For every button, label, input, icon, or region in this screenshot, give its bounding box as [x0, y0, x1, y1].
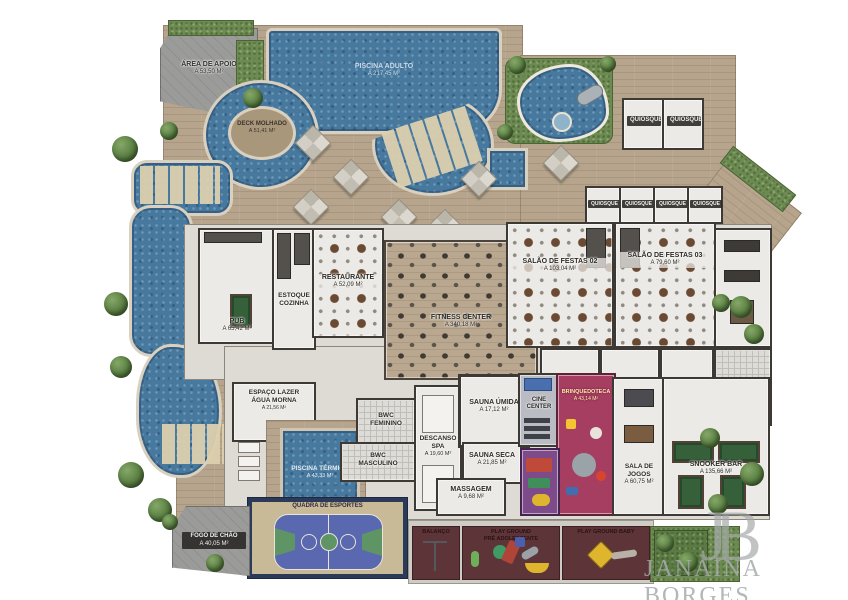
court-ft-circle-right — [340, 534, 356, 550]
estoque-label-2: COZINHA — [274, 300, 314, 308]
brand-name: JANAINA BORGES — [644, 556, 848, 600]
quiosque-label: QUIOSQUE — [622, 200, 654, 208]
baby-slide — [611, 549, 638, 560]
snooker-table — [718, 441, 760, 463]
quiosque-label: QUIOSQUE — [656, 200, 688, 208]
salao2-area: A 103,04 M² — [508, 266, 612, 273]
sala-jogos-label: SALA DE JOGOS — [614, 463, 664, 479]
bwc-masc-label-1: BWC — [342, 452, 414, 460]
kiosk-room: QUIOSQUE — [662, 98, 704, 150]
kiosk-room: QUIOSQUE — [619, 186, 655, 224]
soft-play-block — [528, 478, 550, 488]
play-slide — [520, 545, 540, 561]
tree-icon — [160, 122, 178, 140]
sauna-seca-area: A 21,85 M² — [464, 460, 520, 467]
estoque-label-1: ESTOQUE — [274, 292, 314, 300]
tree-icon — [104, 292, 128, 316]
play-tube-yellow — [525, 563, 549, 573]
massagem-area: A 9,68 M² — [438, 494, 504, 501]
espaco-lazer-label-1: ESPAÇO LAZER — [234, 389, 314, 397]
kiosk-room: QUIOSQUE — [585, 186, 621, 224]
leisure-floor-plan: ÁREA DE APOIO A 53,50 M² PISCINA ADULTO … — [0, 0, 848, 600]
tree-icon — [497, 124, 513, 140]
quiosque-label: QUIOSQUE — [690, 200, 722, 208]
quadra-label: QUADRA DE ESPORTES — [252, 503, 403, 510]
toy-ball — [590, 427, 602, 439]
tree-icon — [110, 356, 132, 378]
room-estoque-cozinha: ESTOQUE COZINHA — [272, 228, 316, 350]
tree-icon — [730, 296, 752, 318]
quiosque-label: QUIOSQUE — [667, 116, 701, 126]
room-sala-jogos: SALA DE JOGOS A 60,75 M² — [612, 377, 666, 516]
play-equipment — [515, 537, 525, 547]
court-field — [274, 514, 383, 570]
pool-adult-label: PISCINA ADULTO — [269, 63, 499, 71]
play-pre-label-1: PLAY GROUND — [463, 529, 559, 536]
room-cine-center: CINE CENTER — [518, 373, 560, 447]
court-outer: QUADRA DE ESPORTES — [247, 497, 408, 579]
tree-icon — [243, 88, 263, 108]
fogo-chao-label: FOGO DE CHÃO A 40,05 M² — [182, 532, 246, 549]
tree-icon — [712, 294, 730, 312]
game-table — [624, 389, 654, 407]
room-pub: PUB A 65,42 M² — [198, 228, 276, 344]
fogo-chao-name: FOGO DE CHÃO — [190, 533, 237, 539]
play-equipment — [471, 551, 479, 567]
kiosk-room: QUIOSQUE — [687, 186, 723, 224]
pub-area: A 65,42 M² — [200, 326, 274, 333]
kiosk-room: QUIOSQUE — [653, 186, 689, 224]
play-baby-label: PLAY GROUND BABY — [563, 529, 649, 536]
brinquedoteca-label: BRINQUEDOTECA — [558, 389, 614, 396]
toy-block — [566, 487, 578, 495]
swing-bar — [423, 541, 447, 543]
hedge-top-left — [168, 20, 254, 36]
tree-icon — [744, 324, 764, 344]
kitchen-counter — [294, 233, 310, 265]
fogo-chao-area: A 40,05 M² — [185, 541, 243, 549]
tree-icon — [508, 56, 526, 74]
restaurante-area: A 52,09 M² — [314, 282, 382, 289]
lagoon-spa-circle — [552, 112, 572, 132]
lounge-sofa — [724, 270, 760, 282]
kiosk-room: QUIOSQUE — [622, 98, 664, 150]
tree-icon — [700, 428, 720, 448]
playground-baby: PLAY GROUND BABY — [562, 526, 650, 580]
room-bwc-masculino: BWC MASCULINO — [340, 442, 416, 482]
room-service — [660, 348, 714, 380]
tree-icon — [162, 514, 178, 530]
descanso-area: A 19,60 M² — [416, 451, 460, 458]
toy-block — [566, 419, 576, 429]
kitchen-counter — [277, 233, 291, 279]
room-salao-festas-02: SALÃO DE FESTAS 02 A 103,04 M² — [506, 222, 614, 348]
espaco-lazer-label-2: ÁGUA MORNA — [234, 397, 314, 405]
court-apron: QUADRA DE ESPORTES — [252, 502, 403, 574]
tree-icon — [600, 56, 616, 72]
soft-play-tube — [532, 494, 550, 506]
bwc-fem-label-2: FEMININO — [358, 420, 414, 428]
brand-name-text: JANAINA BORGES — [644, 556, 761, 600]
playground-pre-adolescente: PLAY GROUND PRÉ ADOLESCENTE — [462, 526, 560, 580]
brinquedoteca-area: A 43,14 M² — [558, 396, 614, 402]
pool-adult-area: A 217,45 M² — [269, 71, 499, 78]
room-soft-play — [520, 448, 560, 516]
court-key-right — [362, 528, 382, 556]
soft-play-slide — [526, 458, 552, 472]
court-ft-circle-left — [301, 534, 317, 550]
room-salao-festas-03: SALÃO DE FESTAS 03 A 79,60 M² — [614, 222, 716, 348]
tree-icon — [740, 462, 764, 486]
sala-jogos-area: A 60,75 M² — [614, 479, 664, 486]
pool-island-deck: DECK MOLHADO A 51,41 M² — [228, 106, 296, 160]
room-restaurante: RESTAURANTE A 52,09 M² — [312, 228, 384, 338]
pub-bar-counter — [204, 232, 262, 243]
tree-icon — [112, 136, 138, 162]
court-key-left — [275, 528, 295, 556]
quiosque-label: QUIOSQUE — [588, 200, 620, 208]
balanco-label: BALANÇO — [413, 529, 459, 536]
bwc-fem-label-1: BWC — [358, 412, 414, 420]
spa-bed — [422, 395, 454, 433]
toy-puzzle-mat — [572, 453, 596, 477]
descanso-label-1: DESCANSO — [416, 435, 460, 443]
tree-icon — [206, 554, 224, 572]
quiosque-label: QUIOSQUE — [627, 116, 661, 126]
game-table — [624, 425, 654, 443]
salao3-area: A 79,60 M² — [616, 260, 714, 267]
spa-lounger — [238, 442, 260, 453]
in-water-loungers-top — [140, 166, 220, 204]
swing-pole — [434, 541, 436, 571]
lounge-sofa — [724, 240, 760, 252]
bwc-masc-label-2: MASCULINO — [342, 460, 414, 468]
deck-molhado-area: A 51,41 M² — [231, 128, 293, 135]
room-bwc-feminino: BWC FEMININO — [356, 398, 416, 446]
cine-label: CINE CENTER — [520, 397, 558, 411]
toy-ball — [596, 471, 606, 481]
espaco-lazer-area: A 21,56 M² — [234, 405, 314, 411]
cine-screen — [524, 378, 552, 391]
spa-lounger — [238, 470, 260, 481]
playground-balanco: BALANÇO — [412, 526, 460, 580]
deck-molhado-label: DECK MOLHADO — [231, 121, 293, 128]
spa-lounger — [238, 456, 260, 467]
court-center-circle — [320, 533, 338, 551]
tree-icon — [118, 462, 144, 488]
cine-seats — [524, 415, 550, 439]
room-brinquedoteca: BRINQUEDOTECA A 43,14 M² — [556, 373, 616, 516]
pool-spa-square — [487, 148, 528, 190]
descanso-label-2: SPA — [416, 443, 460, 451]
tree-icon — [656, 534, 674, 552]
room-massagem: MASSAGEM A 9,68 M² — [436, 478, 506, 516]
